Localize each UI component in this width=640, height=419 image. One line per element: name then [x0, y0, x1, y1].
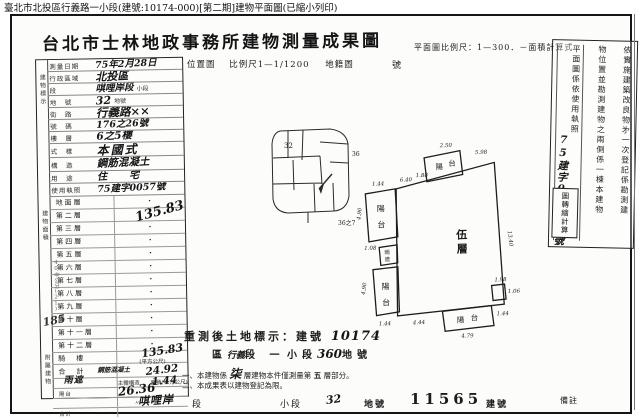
- rain-shade-label-2: 遮: [384, 255, 390, 263]
- hand-new-building-no: 10174: [331, 329, 381, 344]
- xiaoduan-label: 小段: [287, 350, 317, 361]
- scan-edge-line: [634, 14, 635, 410]
- bottom-bldg-label: 建號: [486, 397, 508, 410]
- transcribe-stamp: 圖轉繪計算: [551, 188, 578, 239]
- dim-right-side: 13.40: [506, 230, 514, 247]
- dim-rain-shade: 1.08: [364, 246, 377, 252]
- location-label: 位置圖: [187, 60, 216, 70]
- top-balcony-label-1: 陽: [435, 162, 443, 171]
- bottom-duan-label: 段: [192, 397, 201, 410]
- hand-annex-structure: 鋼筋混凝土: [97, 364, 130, 375]
- ul-balcony-label-2: 台: [377, 219, 385, 229]
- dim-notch-b: 1.06: [508, 289, 521, 295]
- dim-ul-balcony-side: 4.90: [356, 207, 364, 221]
- lot-label: 地號: [342, 350, 372, 361]
- plan-upper-left-balcony: [365, 189, 398, 242]
- location-scale: 比例尺1—1/1200: [229, 60, 309, 70]
- cadastral-label: 地籍圖: [325, 60, 354, 70]
- sketch-lot-32: 32: [284, 142, 293, 150]
- plan-bottom-balcony: [442, 306, 494, 332]
- duan-label: 段: [245, 350, 260, 361]
- ul-balcony-label-1: 陽: [377, 204, 385, 213]
- right-note-col1: 依實施建築改良物㐧一次登記係勘測建: [605, 45, 633, 241]
- top-balcony-label-2: 台: [448, 158, 456, 168]
- remeasure-line1: 重測後土地標示：建號 10174: [184, 328, 381, 344]
- hand-lot-360: 360: [317, 347, 342, 361]
- ll-balcony-label-1: 陽: [381, 282, 389, 291]
- remark-label: 備註: [560, 395, 578, 406]
- dim-top-balcony-width: 2.50: [439, 143, 453, 149]
- bottom-xiaoduan-label: 小段: [280, 397, 302, 410]
- hand-old-section: 唭哩岸: [137, 391, 174, 409]
- rain-shade-label-1: 雨: [384, 249, 390, 256]
- strip-label-marking: 建物標示: [37, 74, 47, 106]
- district-label: 區: [212, 350, 227, 361]
- remeasure-label: 重測後土地標示：建號: [184, 330, 324, 343]
- annex-row: 合計: [53, 407, 188, 418]
- plan-top-balcony: [424, 151, 463, 182]
- hand-floors-count: 柒: [229, 367, 241, 381]
- hand-old-lot: 32: [325, 392, 342, 407]
- strip-label-area: 建物面積: [40, 210, 50, 242]
- strip-label-annex: 附屬建物: [42, 354, 52, 386]
- dim-top-left: 6.40: [400, 177, 413, 183]
- right-note-col2: 物位置並勘測建物之兩側係一棟本建物: [579, 45, 608, 241]
- remeasure-line2: 區行義段 一 小段360地號: [212, 346, 372, 361]
- plan-floor-label-2: 層: [457, 242, 468, 255]
- margin-note: 40中公分(21): [52, 260, 60, 313]
- sheet-number-label: 號: [392, 58, 401, 71]
- dim-ll-balcony-bottom: 1.44: [379, 321, 392, 327]
- hand-xiao: 一: [269, 350, 279, 361]
- doc-title: 台北市士林地政事務所建物測量成果圖: [42, 26, 382, 55]
- old-building-number: 11565: [410, 390, 482, 408]
- bottom-balcony-label-1: 陽: [457, 316, 465, 325]
- plan-scale-note: 平面圖比例尺：1—300．－面積計算式: [414, 42, 573, 53]
- dim-bottom-balcony-width: 4.79: [460, 333, 474, 339]
- bottom-balcony-label-2: 台: [471, 312, 479, 322]
- dim-bottom-balcony-right: 1.44: [496, 311, 509, 317]
- document-page: 台北市士林地政事務所建物測量成果圖 平面圖比例尺：1—300．－面積計算式 位置…: [10, 14, 632, 414]
- dim-top-right: 5.98: [475, 150, 488, 156]
- scanned-survey-document: 臺北市北投區行義路一小段(建號:10174-000)[第二期]建物平面圖(已縮小…: [0, 0, 640, 419]
- bottom-lot-label: 地號: [364, 397, 386, 410]
- dim-bottom-segment: 4.44: [412, 320, 426, 326]
- dim-notch-a: 1.98: [494, 277, 507, 283]
- dim-ll-balcony-side: 4.90: [361, 282, 369, 296]
- hand-district: 行義: [227, 351, 245, 361]
- window-caption: 臺北市北投區行義路一小段(建號:10174-000)[第二期]建物平面圖(已縮小…: [4, 0, 338, 14]
- hand-rainshade-label: 雨遮: [64, 373, 84, 386]
- location-header: 位置圖 比例尺1—1/1200 地籍圖: [187, 58, 354, 70]
- dim-ul-balcony-top: 1.44: [372, 181, 385, 187]
- plan-scale-text: 平面圖比例尺：1—300．: [414, 43, 519, 52]
- building-info-table: 建物標示 建物面積 附屬建物 測量日期75年2月28日 行政區域北投區 段唭哩岸…: [35, 57, 189, 400]
- dim-top-mid: 1.88: [416, 173, 429, 179]
- floor-plan: 伍 層 陽 台 陽 台 雨 遮 陽 台 陽 台 2.50 5.98 1.88 6…: [346, 132, 553, 351]
- ll-balcony-label-2: 台: [382, 297, 390, 307]
- plan-main-outline: [392, 162, 504, 316]
- note-line-2: 二、本成果表以建物登記為限。: [182, 380, 287, 391]
- plan-floor-label-1: 伍: [455, 227, 467, 241]
